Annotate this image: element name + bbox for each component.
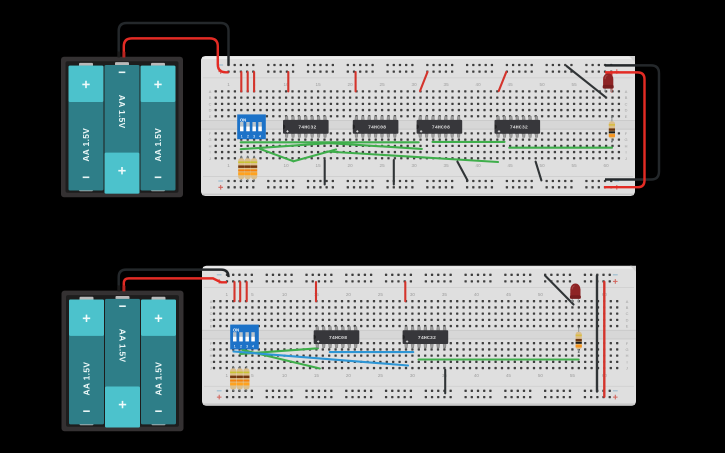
svg-text:A: A	[210, 299, 213, 304]
svg-text:G: G	[625, 347, 628, 352]
svg-text:74HC32: 74HC32	[298, 125, 316, 131]
svg-text:J: J	[210, 366, 212, 371]
svg-text:1: 1	[226, 292, 229, 297]
svg-text:J: J	[626, 366, 628, 371]
svg-text:55: 55	[570, 373, 576, 378]
svg-text:74HC08: 74HC08	[329, 335, 347, 341]
svg-text:I: I	[209, 150, 210, 155]
svg-text:25: 25	[378, 292, 384, 297]
svg-text:B: B	[625, 95, 628, 100]
svg-text:E: E	[210, 324, 213, 329]
svg-text:50: 50	[538, 373, 544, 378]
svg-text:45: 45	[506, 373, 512, 378]
svg-text:50: 50	[538, 292, 544, 297]
svg-text:40: 40	[474, 292, 480, 297]
svg-text:J: J	[209, 156, 211, 161]
svg-text:35: 35	[442, 292, 448, 297]
svg-text:20: 20	[348, 163, 354, 168]
svg-text:30: 30	[410, 292, 416, 297]
svg-text:50: 50	[540, 82, 546, 87]
svg-text:35: 35	[444, 82, 450, 87]
svg-text:55: 55	[572, 163, 578, 168]
svg-text:25: 25	[378, 373, 384, 378]
svg-text:D: D	[210, 317, 213, 322]
svg-text:H: H	[626, 353, 629, 358]
svg-text:55: 55	[572, 82, 578, 87]
svg-text:30: 30	[412, 82, 418, 87]
svg-text:15: 15	[316, 82, 322, 87]
svg-text:E: E	[626, 324, 629, 329]
svg-text:H: H	[210, 353, 213, 358]
svg-text:H: H	[209, 143, 212, 148]
svg-text:30: 30	[410, 373, 416, 378]
svg-text:B: B	[209, 95, 212, 100]
svg-text:20: 20	[348, 82, 354, 87]
svg-text:40: 40	[476, 163, 482, 168]
svg-text:45: 45	[506, 292, 512, 297]
svg-text:G: G	[209, 347, 212, 352]
svg-text:15: 15	[314, 373, 320, 378]
svg-text:1: 1	[226, 373, 229, 378]
svg-text:B: B	[210, 305, 213, 310]
svg-text:50: 50	[540, 163, 546, 168]
svg-text:C: C	[210, 311, 213, 316]
svg-text:60: 60	[604, 163, 610, 168]
svg-text:I: I	[210, 359, 211, 364]
svg-text:1: 1	[227, 82, 230, 87]
svg-text:C: C	[626, 311, 629, 316]
svg-text:30: 30	[412, 163, 418, 168]
svg-text:40: 40	[476, 82, 482, 87]
svg-text:G: G	[208, 137, 211, 142]
svg-text:D: D	[626, 317, 629, 322]
svg-text:74HC08: 74HC08	[368, 125, 386, 131]
svg-text:D: D	[209, 108, 212, 113]
svg-text:B: B	[626, 305, 629, 310]
svg-text:15: 15	[316, 163, 322, 168]
svg-text:H: H	[625, 143, 628, 148]
svg-text:10: 10	[282, 292, 288, 297]
svg-text:C: C	[625, 101, 628, 106]
svg-text:25: 25	[380, 82, 386, 87]
svg-text:45: 45	[508, 82, 514, 87]
svg-text:E: E	[209, 114, 212, 119]
svg-text:74HC32: 74HC32	[418, 335, 436, 341]
svg-text:J: J	[625, 156, 627, 161]
svg-text:10: 10	[284, 163, 290, 168]
svg-text:5: 5	[251, 292, 254, 297]
svg-text:20: 20	[346, 373, 352, 378]
svg-text:A: A	[209, 89, 212, 94]
svg-text:20: 20	[346, 292, 352, 297]
svg-text:E: E	[625, 114, 628, 119]
svg-text:40: 40	[474, 373, 480, 378]
svg-text:1: 1	[227, 163, 230, 168]
svg-text:5: 5	[251, 373, 254, 378]
svg-text:74HC08: 74HC08	[432, 125, 450, 131]
svg-text:I: I	[626, 359, 627, 364]
svg-text:A: A	[625, 89, 628, 94]
svg-text:74HC32: 74HC32	[510, 125, 528, 131]
svg-text:D: D	[625, 108, 628, 113]
svg-text:10: 10	[282, 373, 288, 378]
svg-text:35: 35	[444, 163, 450, 168]
svg-text:A: A	[626, 299, 629, 304]
svg-text:C: C	[209, 101, 212, 106]
svg-text:25: 25	[380, 163, 386, 168]
svg-text:G: G	[624, 137, 627, 142]
svg-text:I: I	[625, 150, 626, 155]
svg-text:45: 45	[508, 163, 514, 168]
